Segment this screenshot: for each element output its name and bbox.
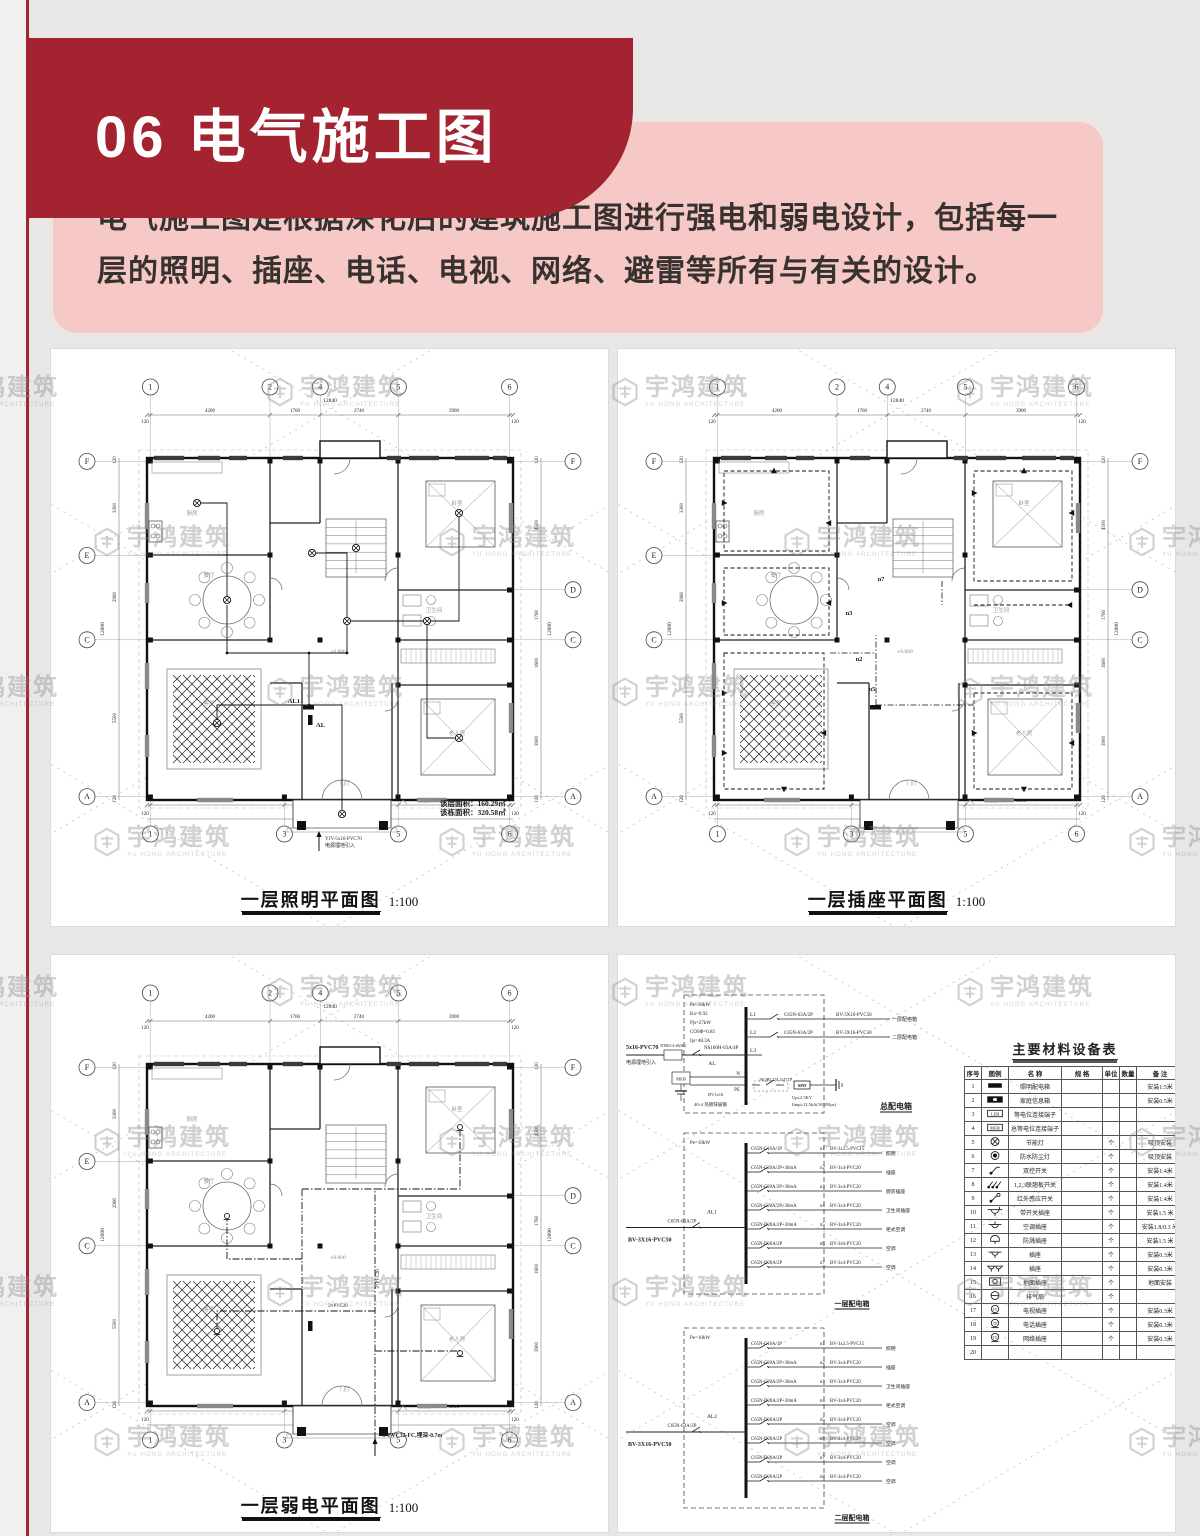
svg-text:1760: 1760 xyxy=(535,610,540,621)
svg-text:4500: 4500 xyxy=(535,520,540,531)
svg-text:D: D xyxy=(1137,585,1143,594)
svg-text:5500: 5500 xyxy=(680,713,685,724)
eq-cell: 6 xyxy=(965,1150,982,1164)
svg-text:1: 1 xyxy=(715,383,719,392)
svg-text:Kx=0.92: Kx=0.92 xyxy=(690,1012,708,1017)
eq-cell xyxy=(1062,1136,1103,1150)
svg-text:n3: n3 xyxy=(820,1185,825,1190)
svg-text:40×4 热镀锌扁钢: 40×4 热镀锌扁钢 xyxy=(694,1101,727,1108)
left-margin-strip xyxy=(0,0,26,1536)
svg-text:卫生间: 卫生间 xyxy=(426,1212,443,1220)
svg-text:1: 1 xyxy=(148,830,152,839)
eq-cell xyxy=(1120,1220,1137,1234)
svg-text:C65N-D20A/2P: C65N-D20A/2P xyxy=(751,1437,783,1442)
eq-symbol xyxy=(982,1248,1009,1262)
svg-text:120: 120 xyxy=(535,1062,540,1070)
eq-cell: 电视插座 xyxy=(1009,1304,1062,1318)
svg-text:MEB: MEB xyxy=(990,1126,1000,1131)
eq-col-header: 图例 xyxy=(982,1067,1009,1080)
svg-text:卫生间: 卫生间 xyxy=(426,606,443,614)
svg-text:C65N-C20A/2P+30mA: C65N-C20A/2P+30mA xyxy=(751,1166,797,1171)
eq-cell: 安装1.4米 xyxy=(1137,1164,1176,1178)
eq-col-header: 单位 xyxy=(1103,1067,1120,1080)
svg-text:n4: n4 xyxy=(820,1204,825,1209)
eq-cell xyxy=(1062,1094,1103,1108)
svg-text:C65N-C20A/2P+30mA: C65N-C20A/2P+30mA xyxy=(751,1185,797,1190)
svg-text:C65N-D20A/2P: C65N-D20A/2P xyxy=(751,1261,783,1266)
eq-cell: 插座 xyxy=(1009,1262,1062,1276)
svg-text:4200: 4200 xyxy=(205,1015,216,1020)
eq-cell: 安装0.3米 xyxy=(1137,1248,1176,1262)
svg-text:3900: 3900 xyxy=(1016,409,1027,414)
svg-text:6: 6 xyxy=(1075,383,1079,392)
svg-text:E: E xyxy=(85,551,90,560)
svg-text:C: C xyxy=(84,635,89,644)
svg-text:COSΦ=0.85: COSΦ=0.85 xyxy=(690,1030,715,1035)
svg-text:n7: n7 xyxy=(820,1456,825,1461)
svg-text:电源埋地引入: 电源埋地引入 xyxy=(325,842,355,849)
svg-text:n7: n7 xyxy=(820,1261,825,1266)
svg-text:照明: 照明 xyxy=(886,1151,896,1157)
svg-text:老人房: 老人房 xyxy=(1016,729,1033,737)
eq-symbol xyxy=(982,1346,1009,1359)
svg-text:2×PVC20: 2×PVC20 xyxy=(328,1304,348,1309)
svg-text:2960: 2960 xyxy=(113,592,118,603)
eq-cell xyxy=(1120,1122,1137,1136)
svg-text:-0.050: -0.050 xyxy=(417,1405,431,1411)
eq-symbol xyxy=(982,1206,1009,1220)
svg-text:BV-3x4-PVC20: BV-3x4-PVC20 xyxy=(830,1437,861,1442)
svg-text:3: 3 xyxy=(849,830,853,839)
svg-text:BV-3x4-PVC20: BV-3x4-PVC20 xyxy=(830,1185,861,1190)
eq-cell: 个 xyxy=(1103,1276,1120,1290)
svg-text:电源埋地引入: 电源埋地引入 xyxy=(626,1059,656,1066)
svg-text:1: 1 xyxy=(715,830,719,839)
eq-cell: 3 xyxy=(965,1108,982,1122)
eq-cell: 个 xyxy=(1103,1332,1120,1346)
eq-symbol xyxy=(982,1150,1009,1164)
eq-col-header: 名 称 xyxy=(1009,1067,1062,1080)
equipment-table-block: 主要材料设备表 序号图例名 称规 格单位数量备 注1照明配电箱安装1.5米2家庭… xyxy=(964,1039,1166,1360)
eq-cell: 个 xyxy=(1103,1178,1120,1192)
plan-title-lighting: 一层照明平面图1:100 xyxy=(51,886,608,912)
eq-row: 9红外感应开关个安装1.4米 xyxy=(965,1192,1176,1206)
eq-cell: 14 xyxy=(965,1262,982,1276)
svg-text:120: 120 xyxy=(141,812,149,817)
svg-text:门厅: 门厅 xyxy=(906,779,918,787)
svg-text:L2: L2 xyxy=(750,1030,756,1036)
svg-text:C65N-C16A/1P: C65N-C16A/1P xyxy=(751,1147,782,1152)
svg-text:120: 120 xyxy=(1078,812,1086,817)
svg-text:1600: 1600 xyxy=(535,658,540,669)
svg-text:1760: 1760 xyxy=(290,409,301,414)
eq-cell xyxy=(1103,1094,1120,1108)
svg-text:F: F xyxy=(652,457,657,466)
page-title: 06 电气施工图 xyxy=(29,38,633,174)
eq-cell: 5 xyxy=(965,1136,982,1150)
eq-cell: 照明配电箱 xyxy=(1009,1080,1062,1094)
eq-cell: 带开关插座 xyxy=(1009,1206,1062,1220)
eq-row: 11空调插座个安装1.8/0.3 米 xyxy=(965,1220,1176,1234)
svg-text:3900: 3900 xyxy=(1102,736,1107,747)
svg-text:120: 120 xyxy=(535,1401,540,1409)
svg-text:2740: 2740 xyxy=(921,409,932,414)
svg-text:空调: 空调 xyxy=(886,1421,896,1428)
eq-col-header: 备 注 xyxy=(1137,1067,1176,1080)
eq-cell: 安装1.4米 xyxy=(1137,1192,1176,1206)
svg-text:120: 120 xyxy=(680,795,685,803)
eq-cell: 20 xyxy=(965,1346,982,1359)
panel-weak-current-plan: 124561356FECAFDCA12840120420017602740390… xyxy=(51,955,608,1532)
svg-text:空调: 空调 xyxy=(886,1459,896,1466)
eq-cell: 总等电位连接端子 xyxy=(1009,1122,1062,1136)
svg-text:3: 3 xyxy=(282,1436,286,1445)
eq-symbol xyxy=(982,1136,1009,1150)
eq-row: 1照明配电箱安装1.5米 xyxy=(965,1080,1176,1094)
svg-text:BV1x16: BV1x16 xyxy=(708,1092,724,1097)
svg-text:柜式空调: 柜式空调 xyxy=(886,1226,905,1233)
svg-text:一层配电箱: 一层配电箱 xyxy=(892,1016,917,1023)
svg-text:120: 120 xyxy=(511,1418,519,1423)
eq-row: 20 xyxy=(965,1346,1176,1359)
eq-cell: 1 xyxy=(965,1080,982,1094)
eq-cell: 安装0.3米 xyxy=(1137,1332,1176,1346)
eq-cell: 13 xyxy=(965,1248,982,1262)
eq-row: 3LEB等电位连接端子 xyxy=(965,1108,1176,1122)
eq-cell xyxy=(1103,1122,1120,1136)
svg-text:120: 120 xyxy=(708,420,716,425)
svg-text:餐厅: 餐厅 xyxy=(770,571,782,579)
eq-cell: 双控开关 xyxy=(1009,1164,1062,1178)
svg-text:1600: 1600 xyxy=(1102,658,1107,669)
svg-text:空调: 空调 xyxy=(886,1264,896,1271)
eq-cell: 个 xyxy=(1103,1220,1120,1234)
eq-row: 17TV电视插座个安装0.3米 xyxy=(965,1304,1176,1318)
svg-text:AL1: AL1 xyxy=(288,698,300,705)
svg-text:C65N-C20A/2P+30mA: C65N-C20A/2P+30mA xyxy=(751,1204,797,1209)
svg-text:BV-3x4-PVC20: BV-3x4-PVC20 xyxy=(830,1261,861,1266)
svg-text:老人房: 老人房 xyxy=(449,1335,466,1343)
equipment-table: 序号图例名 称规 格单位数量备 注1照明配电箱安装1.5米2家庭信息箱安装0.5… xyxy=(964,1066,1175,1360)
svg-text:BV-3x2.5-PVC15: BV-3x2.5-PVC15 xyxy=(830,1147,865,1152)
svg-text:120: 120 xyxy=(680,456,685,464)
svg-text:120: 120 xyxy=(511,812,519,817)
svg-text:二层配电箱: 二层配电箱 xyxy=(835,1513,870,1522)
svg-text:BV-3x4-PVC20: BV-3x4-PVC20 xyxy=(830,1166,861,1171)
eq-row: 10带开关插座个安装1.5 米 xyxy=(965,1206,1176,1220)
eq-cell: 电话插座 xyxy=(1009,1318,1062,1332)
eq-symbol: TO xyxy=(982,1332,1009,1346)
eq-cell xyxy=(1120,1248,1137,1262)
svg-text:门厅: 门厅 xyxy=(339,779,351,787)
svg-text:L3: L3 xyxy=(750,1048,756,1054)
svg-text:3900: 3900 xyxy=(535,1342,540,1353)
panel-socket-plan: 124561356FECAFDCA12840120420017602740390… xyxy=(618,349,1175,926)
eq-symbol: MEB xyxy=(982,1122,1009,1136)
svg-text:C65N-63A/2P: C65N-63A/2P xyxy=(668,1220,697,1225)
eq-cell: 15 xyxy=(965,1276,982,1290)
svg-text:1760: 1760 xyxy=(535,1216,540,1227)
svg-text:C65N-D20A/2P+30mA: C65N-D20A/2P+30mA xyxy=(751,1223,797,1228)
svg-text:120: 120 xyxy=(1102,795,1107,803)
svg-text:5: 5 xyxy=(396,383,400,392)
svg-text:2740: 2740 xyxy=(354,1015,365,1020)
eq-cell: 空调插座 xyxy=(1009,1220,1062,1234)
svg-text:120: 120 xyxy=(511,1026,519,1031)
svg-text:120: 120 xyxy=(113,456,118,464)
weak-current-plan-drawing: 124561356FECAFDCA12840120420017602740390… xyxy=(57,959,602,1464)
eq-cell: 个 xyxy=(1103,1192,1120,1206)
svg-text:BV-3X16-PVC50: BV-3X16-PVC50 xyxy=(628,1442,672,1448)
eq-symbol xyxy=(982,1178,1009,1192)
svg-text:卫生间插座: 卫生间插座 xyxy=(886,1207,910,1214)
svg-text:Pe=10kW: Pe=10kW xyxy=(690,1141,710,1146)
eq-cell: 9 xyxy=(965,1192,982,1206)
svg-text:12000: 12000 xyxy=(100,622,106,636)
svg-text:-0.050: -0.050 xyxy=(984,799,998,805)
svg-text:4: 4 xyxy=(885,383,889,392)
svg-text:C: C xyxy=(1137,635,1142,644)
eq-row: 14插座个安装0.3米 xyxy=(965,1262,1176,1276)
eq-cell xyxy=(1062,1262,1103,1276)
svg-text:5500: 5500 xyxy=(113,713,118,724)
eq-cell xyxy=(1062,1276,1103,1290)
eq-row: 15地面插座个地面安装 xyxy=(965,1276,1176,1290)
svg-text:Iimp≥12.5kA(10/350μs): Iimp≥12.5kA(10/350μs) xyxy=(792,1102,837,1107)
eq-cell xyxy=(1062,1178,1103,1192)
svg-text:C65N-D20A/2P+30mA: C65N-D20A/2P+30mA xyxy=(751,1399,797,1404)
svg-text:插座: 插座 xyxy=(886,1169,896,1176)
svg-text:TO: TO xyxy=(993,1336,998,1340)
svg-text:12000: 12000 xyxy=(547,622,553,636)
eq-cell xyxy=(1120,1094,1137,1108)
svg-text:2960: 2960 xyxy=(680,592,685,603)
eq-symbol xyxy=(982,1164,1009,1178)
eq-cell xyxy=(1009,1346,1062,1359)
svg-text:N: N xyxy=(736,1072,740,1077)
eq-cell xyxy=(1062,1332,1103,1346)
svg-text:120: 120 xyxy=(141,420,149,425)
svg-text:n3: n3 xyxy=(820,1380,825,1385)
svg-text:C: C xyxy=(84,1241,89,1250)
svg-text:3900: 3900 xyxy=(449,1015,460,1020)
eq-cell: 网络插座 xyxy=(1009,1332,1062,1346)
svg-text:3900: 3900 xyxy=(535,736,540,747)
eq-cell xyxy=(1062,1150,1103,1164)
svg-text:Pe=10kW: Pe=10kW xyxy=(690,1336,710,1341)
eq-cell: 红外感应开关 xyxy=(1009,1192,1062,1206)
svg-text:4: 4 xyxy=(318,383,322,392)
eq-cell xyxy=(1062,1304,1103,1318)
svg-text:12840: 12840 xyxy=(323,1004,337,1010)
eq-cell: 个 xyxy=(1103,1150,1120,1164)
eq-cell: 插座 xyxy=(1009,1248,1062,1262)
eq-cell xyxy=(1120,1178,1137,1192)
eq-cell xyxy=(1120,1262,1137,1276)
svg-text:3: 3 xyxy=(282,830,286,839)
eq-cell xyxy=(1103,1346,1120,1359)
svg-text:厨房: 厨房 xyxy=(753,509,765,517)
svg-text:BV-3x4-PVC20: BV-3x4-PVC20 xyxy=(830,1399,861,1404)
svg-text:TP: TP xyxy=(993,1322,997,1326)
svg-text:n6: n6 xyxy=(820,1437,825,1442)
svg-text:F: F xyxy=(85,457,90,466)
svg-text:5x16-PVC70: 5x16-PVC70 xyxy=(626,1045,658,1051)
svg-text:C: C xyxy=(570,1241,575,1250)
svg-text:4200: 4200 xyxy=(772,409,783,414)
svg-text:6: 6 xyxy=(508,383,512,392)
svg-text:n3: n3 xyxy=(846,610,854,617)
eq-cell: 个 xyxy=(1103,1262,1120,1276)
plan-title-weak: 一层弱电平面图1:100 xyxy=(51,1492,608,1518)
svg-text:2960: 2960 xyxy=(113,1198,118,1209)
svg-text:A: A xyxy=(651,792,657,801)
svg-text:n5: n5 xyxy=(869,686,877,693)
eq-cell: 吸顶安装 xyxy=(1137,1136,1176,1150)
eq-row: 18TP电话插座个安装0.3米 xyxy=(965,1318,1176,1332)
eq-cell xyxy=(1062,1164,1103,1178)
svg-text:C65N-D20A/2P: C65N-D20A/2P xyxy=(751,1242,783,1247)
svg-text:C65N-63A/2P: C65N-63A/2P xyxy=(784,1031,813,1036)
svg-text:客厅: 客厅 xyxy=(770,699,782,707)
svg-text:AL: AL xyxy=(316,722,326,729)
svg-text:F: F xyxy=(571,1063,576,1072)
svg-text:卧室: 卧室 xyxy=(451,499,463,507)
svg-text:1760: 1760 xyxy=(290,1015,301,1020)
svg-text:6: 6 xyxy=(1075,830,1079,839)
svg-text:A: A xyxy=(84,792,90,801)
svg-text:餐厅: 餐厅 xyxy=(203,1177,215,1185)
svg-text:6: 6 xyxy=(508,830,512,839)
svg-text:3900: 3900 xyxy=(449,409,460,414)
panel-system-diagram: Pe=30kWKx=0.92Pjs=27kWCOSΦ=0.85Ijs=48.3A… xyxy=(618,955,1175,1532)
eq-row: 6防水防尘灯个吸顶安装 xyxy=(965,1150,1176,1164)
eq-cell xyxy=(1062,1234,1103,1248)
svg-text:C65N-C20A/2P+30mA: C65N-C20A/2P+30mA xyxy=(751,1380,797,1385)
section-banner: 06 电气施工图 xyxy=(29,38,633,218)
svg-text:5: 5 xyxy=(396,989,400,998)
eq-cell: 节能灯 xyxy=(1009,1136,1062,1150)
distribution-system-diagram: Pe=30kWKx=0.92Pjs=27kWCOSΦ=0.85Ijs=48.3A… xyxy=(624,957,969,1530)
eq-cell: 排气扇 xyxy=(1009,1290,1062,1304)
eq-cell xyxy=(1120,1206,1137,1220)
eq-cell: 等电位连接端子 xyxy=(1009,1108,1062,1122)
svg-text:n4: n4 xyxy=(820,1399,825,1404)
eq-cell: 安装1.4米 xyxy=(1137,1178,1176,1192)
eq-col-header: 规 格 xyxy=(1062,1067,1103,1080)
eq-symbol xyxy=(982,1094,1009,1108)
eq-symbol: TV xyxy=(982,1304,1009,1318)
svg-text:±0.000: ±0.000 xyxy=(330,649,346,655)
svg-text:6: 6 xyxy=(508,989,512,998)
eq-symbol: TP xyxy=(982,1318,1009,1332)
eq-symbol xyxy=(982,1080,1009,1094)
svg-text:n5: n5 xyxy=(820,1223,825,1228)
svg-text:AL: AL xyxy=(708,1061,716,1067)
svg-text:±0.000: ±0.000 xyxy=(330,1255,346,1261)
svg-text:C65N-C20A/2P+30mA: C65N-C20A/2P+30mA xyxy=(751,1361,797,1366)
svg-text:F: F xyxy=(571,457,576,466)
svg-text:12840: 12840 xyxy=(890,398,904,404)
svg-text:4: 4 xyxy=(318,989,322,998)
panel-lighting-plan: 124561356FECAFDCA12840120420017602740390… xyxy=(51,349,608,926)
eq-symbol xyxy=(982,1276,1009,1290)
svg-text:3300: 3300 xyxy=(680,503,685,514)
svg-text:BV-3x4-PVC20: BV-3x4-PVC20 xyxy=(830,1418,861,1423)
svg-text:12840: 12840 xyxy=(323,398,337,404)
svg-text:120: 120 xyxy=(708,812,716,817)
svg-text:4500: 4500 xyxy=(1102,520,1107,531)
eq-cell xyxy=(1137,1346,1176,1359)
eq-symbol xyxy=(982,1220,1009,1234)
eq-cell: 4 xyxy=(965,1122,982,1136)
svg-text:C65N-63A/2P: C65N-63A/2P xyxy=(668,1424,697,1429)
svg-text:柜式空调: 柜式空调 xyxy=(886,1402,905,1409)
svg-text:Pe=30kW: Pe=30kW xyxy=(690,1003,710,1008)
svg-text:F: F xyxy=(1138,457,1143,466)
eq-cell xyxy=(1120,1276,1137,1290)
svg-text:A: A xyxy=(84,1398,90,1407)
eq-col-header: 数量 xyxy=(1120,1067,1137,1080)
eq-cell: 个 xyxy=(1103,1206,1120,1220)
svg-text:客厅: 客厅 xyxy=(203,1305,215,1313)
svg-text:BV-3x4-PVC20: BV-3x4-PVC20 xyxy=(830,1380,861,1385)
eq-symbol xyxy=(982,1290,1009,1304)
svg-text:PE: PE xyxy=(734,1088,740,1093)
svg-text:12000: 12000 xyxy=(100,1228,106,1242)
socket-plan-drawing: 124561356FECAFDCA12840120420017602740390… xyxy=(624,353,1169,858)
svg-text:1760: 1760 xyxy=(1102,610,1107,621)
svg-text:120: 120 xyxy=(535,795,540,803)
svg-text:120: 120 xyxy=(511,420,519,425)
eq-cell xyxy=(1062,1248,1103,1262)
svg-text:±0.000: ±0.000 xyxy=(897,649,913,655)
svg-text:C: C xyxy=(651,635,656,644)
eq-symbol xyxy=(982,1192,1009,1206)
eq-cell xyxy=(1062,1108,1103,1122)
svg-text:120: 120 xyxy=(113,1401,118,1409)
eq-cell: 安装0.3米 xyxy=(1137,1304,1176,1318)
svg-text:BV-3x2.5-PVC15: BV-3x2.5-PVC15 xyxy=(830,1342,865,1347)
svg-text:n7: n7 xyxy=(878,576,886,583)
eq-symbol: LEB xyxy=(982,1108,1009,1122)
eq-cell xyxy=(1120,1234,1137,1248)
svg-text:120: 120 xyxy=(1102,456,1107,464)
eq-cell: 19 xyxy=(965,1332,982,1346)
svg-text:2×PVC20: 2×PVC20 xyxy=(376,1269,381,1289)
eq-col-header: 序号 xyxy=(965,1067,982,1080)
svg-text:4500: 4500 xyxy=(535,1126,540,1137)
eq-row: 2家庭信息箱安装0.5米 xyxy=(965,1094,1176,1108)
eq-cell: 吸顶安装 xyxy=(1137,1150,1176,1164)
eq-cell xyxy=(1137,1122,1176,1136)
svg-text:BV-3x4-PVC20: BV-3x4-PVC20 xyxy=(830,1456,861,1461)
eq-cell: 个 xyxy=(1103,1164,1120,1178)
svg-text:BV-3X16-PVC50: BV-3X16-PVC50 xyxy=(628,1238,672,1244)
svg-text:12000: 12000 xyxy=(1114,622,1120,636)
svg-text:Ijs=48.3A: Ijs=48.3A xyxy=(690,1039,711,1044)
eq-symbol xyxy=(982,1234,1009,1248)
svg-text:C: C xyxy=(570,635,575,644)
svg-text:TV: TV xyxy=(993,1308,998,1312)
svg-text:二层配电箱: 二层配电箱 xyxy=(892,1034,917,1041)
svg-text:空调: 空调 xyxy=(886,1245,896,1252)
svg-text:5500: 5500 xyxy=(113,1319,118,1330)
eq-cell: 个 xyxy=(1103,1136,1120,1150)
eq-cell: 安装0.5米 xyxy=(1137,1094,1176,1108)
eq-cell: 个 xyxy=(1103,1318,1120,1332)
svg-text:BV-3x4-PVC20: BV-3x4-PVC20 xyxy=(830,1475,861,1480)
